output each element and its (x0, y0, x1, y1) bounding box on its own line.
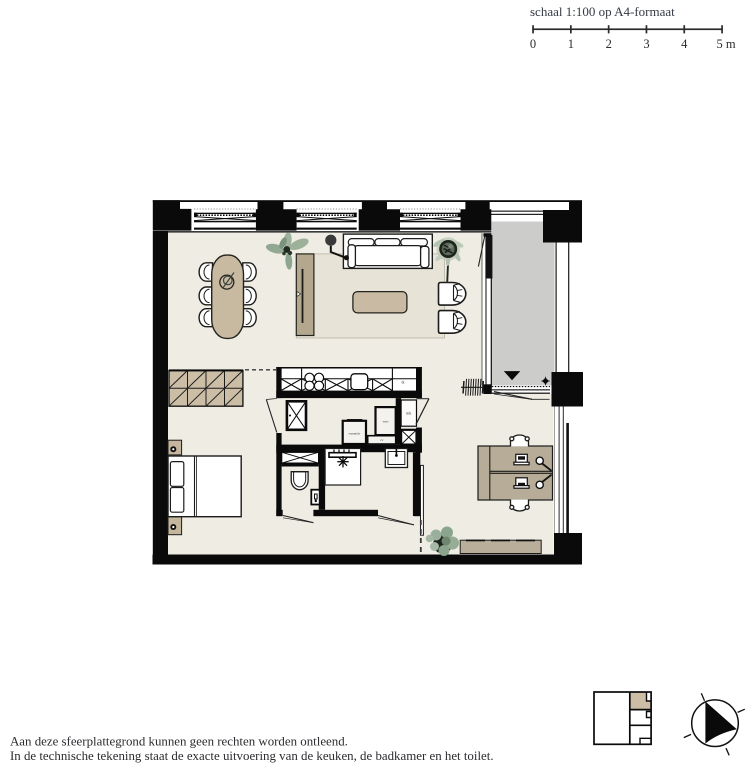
svg-text:1: 1 (568, 37, 574, 51)
svg-text:0: 0 (530, 37, 536, 51)
svg-text:wtw: wtw (383, 420, 389, 424)
svg-text:In de technische tekening staa: In de technische tekening staat de exact… (10, 749, 494, 763)
svg-text:tk: tk (401, 380, 404, 385)
svg-text:4: 4 (681, 37, 688, 51)
svg-text:Aan deze sfeerplattegrond kunn: Aan deze sfeerplattegrond kunnen geen re… (10, 735, 348, 749)
svg-text:5 m: 5 m (716, 37, 735, 51)
svg-text:3: 3 (643, 37, 649, 51)
svg-text:mk: mk (406, 411, 411, 416)
svg-text:schaal 1:100 op A4-formaat: schaal 1:100 op A4-formaat (530, 4, 675, 19)
svg-text:2: 2 (606, 37, 612, 51)
svg-text:cv: cv (380, 438, 384, 442)
svg-text:wasm/dr: wasm/dr (348, 432, 361, 436)
